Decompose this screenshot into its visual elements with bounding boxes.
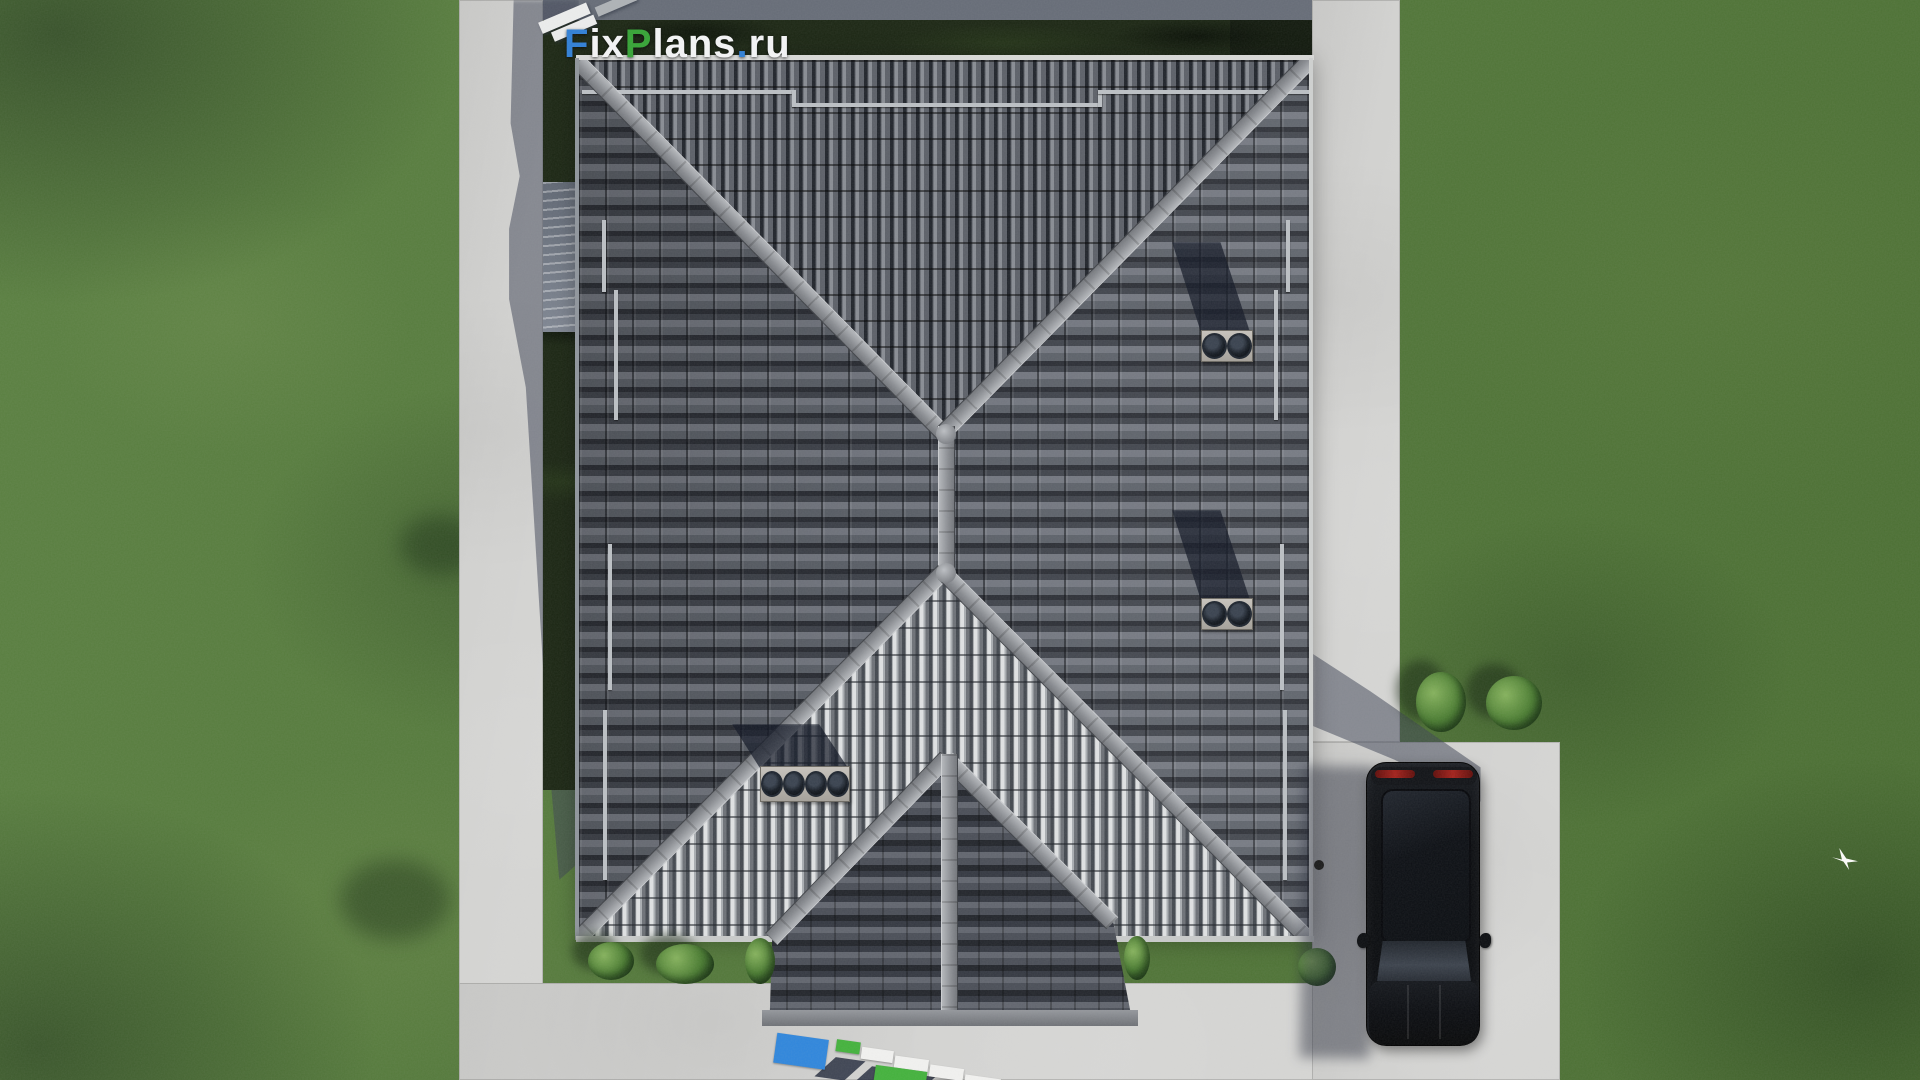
- ridge-junction-cap: [936, 563, 956, 583]
- bush: [1124, 936, 1150, 980]
- car-roof-glass: [1381, 789, 1471, 945]
- logo-part: P: [625, 22, 653, 66]
- flue-pipe: [1227, 601, 1252, 627]
- chimney-lower-east: [1201, 598, 1253, 630]
- porch-roof: [762, 752, 1138, 1028]
- hood-crease: [1439, 985, 1441, 1039]
- car-hood: [1369, 981, 1479, 1045]
- watermark-block-blue: [773, 1033, 829, 1070]
- logo-part: ru: [749, 22, 791, 66]
- hedge-west: [543, 20, 579, 790]
- flue-pipe: [1227, 333, 1252, 359]
- car: [1366, 762, 1480, 1046]
- mirror-left: [1357, 933, 1369, 948]
- watermark-block-white: [964, 1074, 1001, 1080]
- bush: [745, 938, 775, 984]
- roof-rail: [1280, 544, 1284, 690]
- roof-rail: [614, 290, 618, 420]
- ridge-junction-cap: [936, 424, 956, 444]
- watermark-block-green: [835, 1039, 860, 1054]
- chimney-shadow: [1172, 242, 1250, 332]
- roof-rail: [1274, 290, 1278, 420]
- taillight-right: [1433, 770, 1473, 778]
- taillight-left: [1375, 770, 1415, 778]
- drain-cover: [1314, 860, 1324, 870]
- chimney-shadow: [1172, 510, 1250, 600]
- roof-rail: [603, 710, 607, 880]
- porch-eave-bar: [762, 1010, 1138, 1026]
- mirror-right: [1479, 933, 1491, 948]
- windshield: [1377, 941, 1471, 981]
- gravel-patch: [543, 182, 579, 332]
- ridge-center: [938, 426, 955, 579]
- bush: [1416, 672, 1466, 732]
- chimney-upper-east: [1201, 330, 1253, 362]
- fixplans-logo: FixPlans.ru: [564, 22, 791, 67]
- logo-part: lans: [652, 22, 736, 66]
- logo-part: F: [564, 22, 589, 66]
- hood-crease: [1407, 985, 1409, 1039]
- path-east: [1312, 0, 1400, 742]
- roof-rail: [1286, 220, 1290, 292]
- car-shadow: [1299, 765, 1374, 1058]
- bush: [656, 944, 714, 984]
- aerial-house-render: FixPlans.ru: [0, 0, 1920, 1080]
- flue-pipe: [1202, 601, 1227, 627]
- bush: [588, 942, 634, 980]
- car-body: [1366, 762, 1480, 1046]
- fascia-west: [575, 58, 579, 940]
- hedge-shadow-corner: [1230, 20, 1312, 60]
- logo-part: .: [737, 22, 749, 66]
- roof-rail: [1283, 710, 1287, 880]
- flue-pipe: [1202, 333, 1227, 359]
- logo-part: ix: [589, 22, 624, 66]
- plank-board: [595, 0, 638, 17]
- snow-rail: [792, 103, 1098, 107]
- bush: [1486, 676, 1542, 730]
- roof-rail: [608, 544, 612, 690]
- porch-ridge-center: [941, 754, 958, 1012]
- roof-rail: [602, 220, 606, 292]
- tree-shadow-patch: [340, 860, 450, 940]
